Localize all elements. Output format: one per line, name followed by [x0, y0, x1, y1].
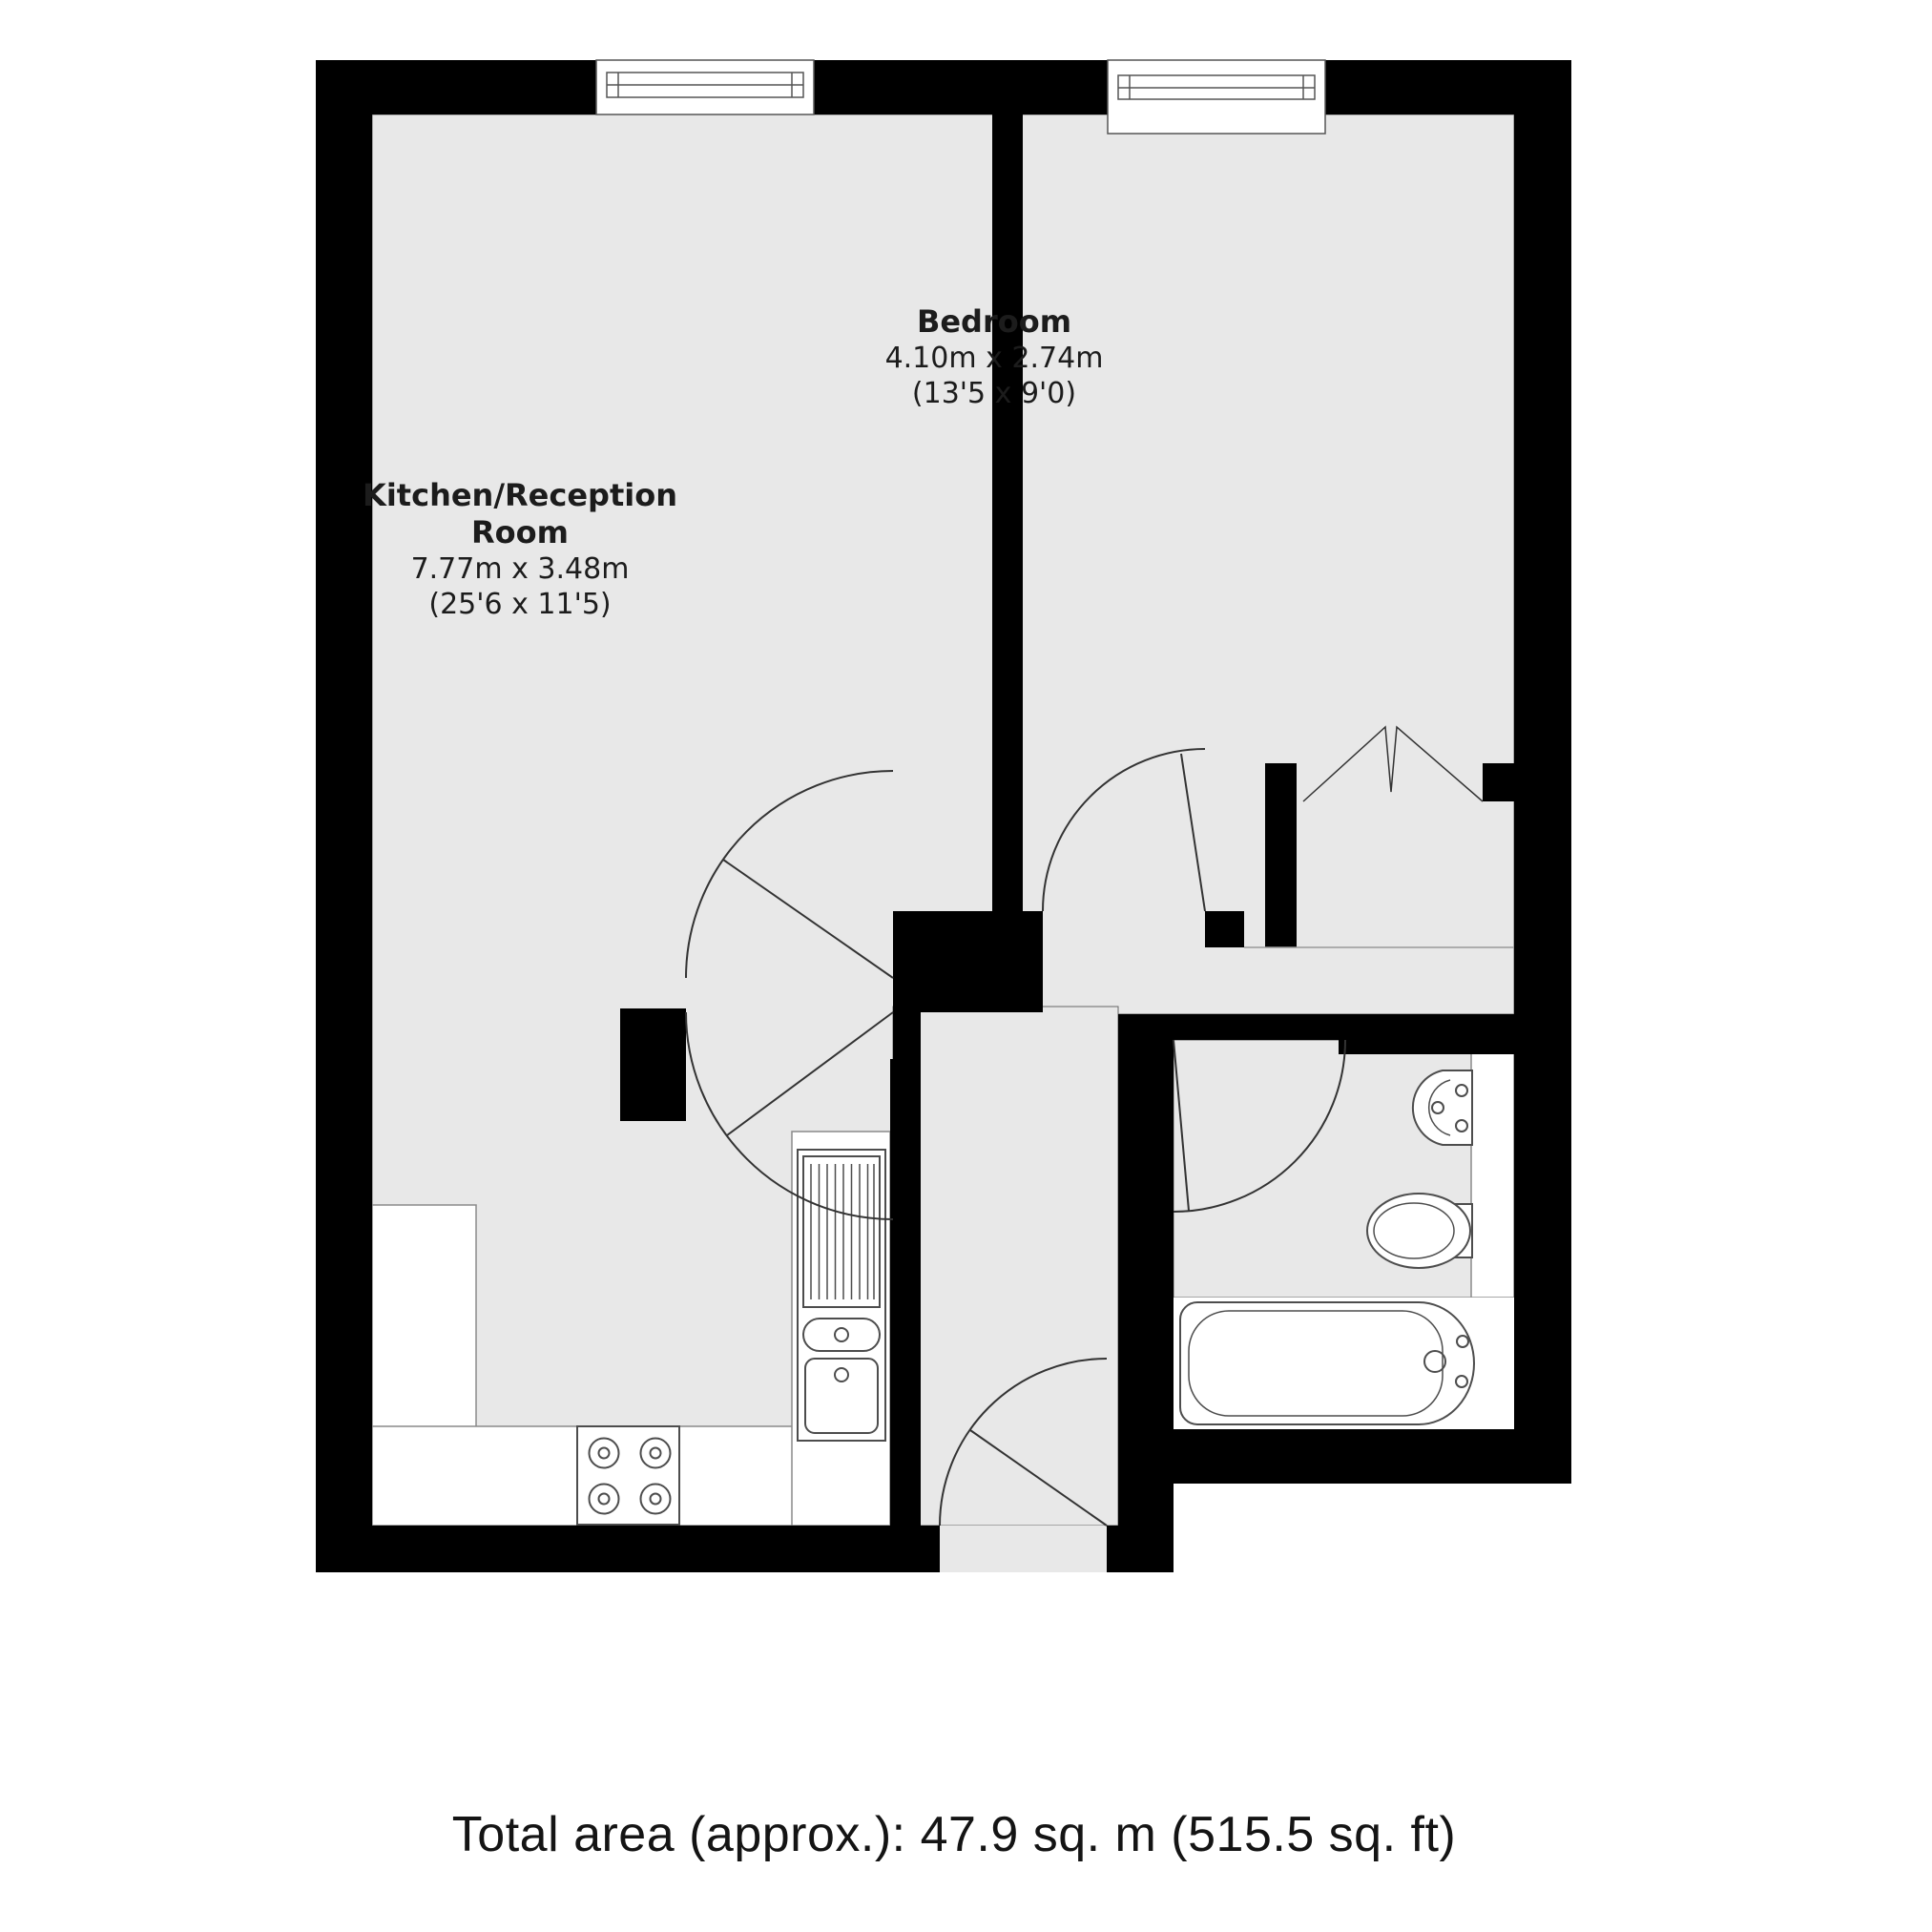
wall-hall-north-block: [893, 911, 1043, 1012]
wall-top: [316, 60, 1571, 114]
kitchen-reception-label: Kitchen/Reception Room 7.77m x 3.48m (25…: [363, 477, 677, 622]
wall-kitchen-bedroom-divider: [992, 114, 1023, 935]
wall-right: [1514, 60, 1571, 1484]
wall-hall-east: [1118, 1014, 1174, 1572]
entry-threshold: [940, 1526, 1107, 1572]
bedroom-window: [1108, 60, 1325, 134]
kitchen-window: [596, 60, 814, 114]
wall-bedroom-door-stub: [1205, 911, 1244, 947]
total-area-text: Total area (approx.): 47.9 sq. m (515.5 …: [452, 1806, 1456, 1863]
bathroom-duct-strip: [1471, 1040, 1514, 1298]
kitchen-dimensions-imperial: (25'6 x 11'5): [363, 587, 677, 622]
hall-floor: [893, 1007, 1118, 1526]
wall-bathroom-north-lip: [1339, 1040, 1514, 1054]
kitchen-dimensions-metric: 7.77m x 3.48m: [363, 551, 677, 587]
wall-kitchen-hall: [890, 1059, 921, 1526]
wall-bottom-left: [316, 1526, 940, 1572]
bedroom-dimensions-metric: 4.10m x 2.74m: [885, 341, 1104, 376]
toilet-fixture: [1367, 1194, 1472, 1268]
wall-closet-west: [1265, 763, 1297, 947]
wall-kitchen-door-stub: [620, 1008, 686, 1121]
bedroom-dimensions-imperial: (13'5 x 9'0): [885, 376, 1104, 411]
wall-step: [893, 1012, 921, 1059]
kitchen-room-name-line1: Kitchen/Reception: [363, 477, 677, 514]
kitchen-room-name-line2: Room: [363, 514, 677, 551]
bedroom-label: Bedroom 4.10m x 2.74m (13'5 x 9'0): [885, 303, 1104, 411]
bathtub-fixture: [1180, 1302, 1474, 1424]
wall-closet-stub-right: [1483, 763, 1514, 801]
kitchen-hob-fixture: [577, 1426, 679, 1525]
floorplan-canvas: Kitchen/Reception Room 7.77m x 3.48m (25…: [0, 0, 1932, 1932]
wall-left: [316, 60, 372, 1572]
bedroom-room-name: Bedroom: [885, 303, 1104, 341]
kitchen-sink-drainer-fixture: [798, 1150, 885, 1441]
wall-bathroom-north: [1174, 1014, 1514, 1040]
wall-bathroom-south: [1118, 1429, 1571, 1484]
floorplan-drawing: [0, 0, 1932, 1932]
